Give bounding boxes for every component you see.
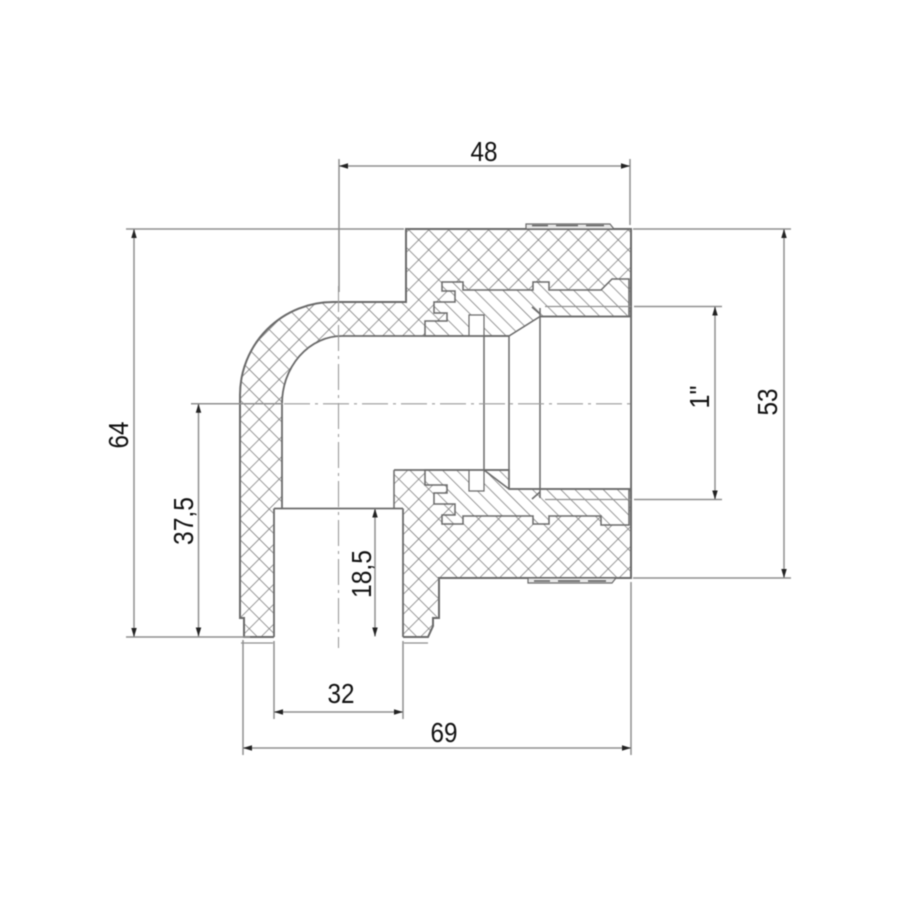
- svg-text:64: 64: [103, 422, 134, 449]
- svg-text:69: 69: [431, 717, 458, 748]
- svg-text:32: 32: [328, 678, 355, 709]
- svg-text:48: 48: [471, 136, 498, 167]
- svg-text:53: 53: [752, 389, 783, 416]
- svg-text:18,5: 18,5: [346, 550, 377, 598]
- svg-text:1": 1": [684, 386, 715, 409]
- svg-text:37,5: 37,5: [168, 497, 199, 545]
